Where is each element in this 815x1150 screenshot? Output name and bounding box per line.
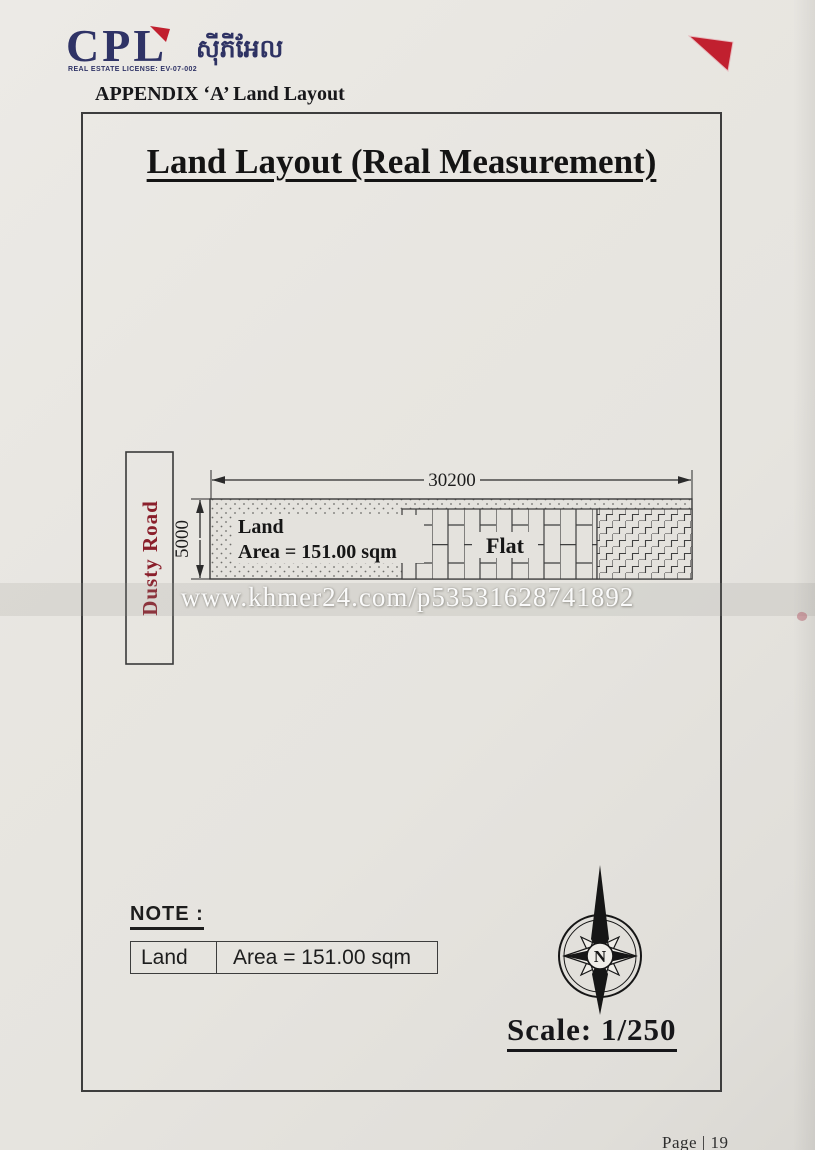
document-page: CPL REAL ESTATE LICENSE: EV-07-002 ស៊ីភី… — [0, 0, 815, 1150]
left-dimension-label: 5000 — [172, 520, 193, 558]
parcel-area-label: Area = 151.00 sqm — [238, 541, 397, 563]
note-table-cell-land: Land — [131, 942, 217, 973]
compass-rose-icon: N — [552, 862, 648, 1018]
parcel-label: Land — [238, 516, 284, 538]
page-number: Page | 19 — [662, 1133, 728, 1150]
annex-hatch-rect — [597, 509, 692, 579]
sheet-title: Land Layout (Real Measurement) — [81, 142, 722, 182]
land-layout-diagram: Dusty Road 30200 5000 Land Area = 151.00… — [80, 430, 710, 680]
compass-north-label: N — [594, 947, 607, 966]
appendix-heading: APPENDIX ‘A’ Land Layout — [95, 83, 345, 106]
cpl-license-text: REAL ESTATE LICENSE: EV-07-002 — [68, 66, 197, 73]
top-dimension-label: 30200 — [428, 470, 476, 491]
cpl-khmer-name: ស៊ីភីអែល — [196, 34, 283, 70]
flat-label: Flat — [486, 533, 525, 558]
note-heading: NOTE : — [130, 903, 204, 930]
note-table-cell-area: Area = 151.00 sqm — [217, 942, 437, 973]
cpl-logo-flag-icon — [150, 26, 170, 42]
corner-red-triangle-icon — [688, 34, 734, 72]
note-table: Land Area = 151.00 sqm — [130, 941, 438, 974]
scale-label: Scale: 1/250 — [507, 1012, 677, 1052]
watermark-text: www.khmer24.com/p53531628741892 — [0, 582, 815, 613]
